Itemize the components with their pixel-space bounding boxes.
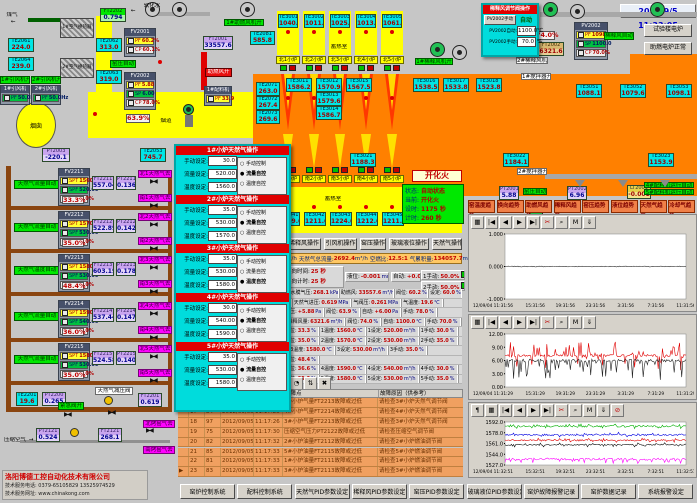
mode-radio-温度自控[interactable]: ○ 温度自控 [240,228,284,238]
param-unit: % [419,346,424,355]
param-value: 35.0 [298,337,310,346]
fan-top-right-icon [650,2,665,17]
instrument-value: 1184.1 [504,160,528,167]
stop-icon[interactable]: ⊘ [611,404,624,417]
controller-title: FV2215 [59,344,89,351]
param-key: 助燃风: [341,289,358,298]
north-flame-core-5 [388,74,396,110]
export-icon[interactable]: ⇓ [583,216,596,229]
id-fan-2-on: 2#引风机开 [31,76,61,84]
nav-button-天然气PID参数设定[interactable]: 天然气PID参数设定 [295,484,350,499]
kiln-pressure-auto: 窑压自动 [110,60,136,68]
instrument-PT2213: PT22130.178 [116,262,136,276]
instrument-value: 0.794 [101,15,125,22]
setpoint-label: 流量设定: [176,219,208,227]
dilution-manual-button[interactable]: PV2002手动 [484,15,516,25]
trend-button-窑温度趋势[interactable]: 窑温度趋势 [468,200,495,213]
param-value: 30.0 [436,365,448,374]
alarm-cell: 请检查3#小炉天然气调节阀 [378,398,463,407]
instrument-value: 1579.6 [317,99,341,106]
op-button-天然气操作[interactable]: 天然气操作 [432,238,462,250]
param-value: 0.261 [371,299,387,308]
gas-valve-1-south-icon: ▶◀ [150,203,164,210]
param-key: 1温度: [321,327,336,336]
burner-panel-title: 3#小炉天然气操作 [176,244,289,253]
trend-button-冷却气趋势[interactable]: 冷却气趋势 [668,200,695,213]
mode-radio-流量自控[interactable]: ● 流量自控 [240,316,284,326]
combustion-fan-2-icon [570,4,585,19]
instrument-value: 0.140 [117,358,135,365]
param-cell: 手动:70.0% [425,318,461,327]
setpoint-input[interactable]: 530.00 [208,267,237,277]
param-unit: % [311,365,316,374]
summary-key: 空燃比: [370,255,388,263]
param-key: 自动: [362,308,374,317]
burner-label-南3小炉[interactable]: 南3小炉 [328,175,352,183]
level-cell-1: 自动:+0.000mm [391,272,421,282]
burner-indicator-on-南3小炉 [332,167,339,173]
hmi-root: 2012/9/5 11:33:05 洛阳博德工控自动化技术有限公司 技术服务电话… [0,0,697,503]
instrument-FT2211: FT2211557.04 [92,176,114,190]
softwater-arrow-icon: ← [128,8,138,16]
mode-radio-温度自控[interactable]: ○ 温度自控 [240,326,284,336]
instrument-TE2073: TE2073269.6 [256,110,280,124]
mode-radio-手动控制[interactable]: ○ 手动控制 [240,355,284,365]
alarm-row-22[interactable]: 22812012/09/0511:17:331#小炉油量FT2111故障或过低请… [178,457,463,467]
mode-radio-手动控制[interactable]: ○ 手动控制 [240,208,284,218]
trend-button-天然气趋势[interactable]: 天然气趋势 [640,200,667,213]
zoom-icon[interactable]: ⌕ [555,216,568,229]
svg-text:3:31:29: 3:31:29 [617,391,634,397]
controller-row-SPF: SPF540.00 [60,318,88,326]
pipe-gas-main [6,166,11,412]
level-key: 自动: [393,274,406,280]
op-button-稀释风操作[interactable]: 稀释风操作 [287,238,321,250]
nav-button-窑炉故障报警记录[interactable]: 窑炉故障报警记录 [524,484,579,499]
param-key: 设定: [430,289,442,298]
marker-icon[interactable]: M [569,216,582,229]
gas-row-3-auto-label: 天然气温度自动 [14,266,60,275]
nav-button-窑炉数据记录[interactable]: 窑炉数据记录 [581,484,636,499]
gas-valve-5-north-icon: ▶◀ [150,354,164,361]
gas-row-4-valve-position: 36.0% [62,328,84,336]
setpoint-label: 手动设定: [176,304,208,312]
next-icon[interactable]: ▶ [513,216,526,229]
instrument-TE2053: TE2053745.7 [140,148,166,162]
mode-radio-手动控制[interactable]: ○ 手动控制 [240,306,284,316]
instrument-FT2214: FT2214537.44 [92,308,114,322]
indicator-dot-12 [286,30,290,34]
alarm-row-20[interactable]: 20822012/09/0511:17:322#小炉油量FT2112故障或过低请… [178,438,463,448]
dilution-label: PV2002自动: [483,28,517,34]
param-key: SPT [69,310,78,316]
status-key: 计时: [405,214,419,223]
controller-row-PF: PF1098.1 [576,31,606,39]
param-key: SPF [69,230,78,236]
mode-radio-温度自控[interactable]: ○ 温度自控 [240,375,284,385]
gas-dest-2-north: 北2天然气去 [138,213,172,221]
first-icon[interactable]: |◀ [485,316,498,329]
trend-button-助燃风趋势[interactable]: 助燃风趋势 [525,200,552,213]
controller-1#配料机[interactable]: 1#配料机PF33.9 [204,86,232,106]
burner-label-北5小炉[interactable]: 北5小炉 [380,56,404,64]
checkbox-icon [578,41,584,47]
grid-icon[interactable]: ▦ [471,216,484,229]
setpoint-input[interactable]: 30.0 [208,303,237,313]
controller-2#引风机[interactable]: 2#引风机PF50.0Hz [31,85,61,105]
op-button-引风机操作[interactable]: 引风机操作 [324,238,357,250]
instrument-value: 224.0 [9,45,33,52]
alarm-cell: 20 [189,438,205,447]
trend-button-液位趋势[interactable]: 液位趋势 [611,200,638,213]
grid-icon[interactable]: ▦ [471,316,484,329]
nav-button-窑炉控制系统[interactable]: 窑炉控制系统 [180,484,235,499]
mode-radio-流量自控[interactable]: ● 流量自控 [240,169,284,179]
burner-label-北1小炉[interactable]: 北1小炉 [276,56,300,64]
setpoint-input[interactable]: 1590.0 [208,329,237,339]
gas-valve-3-north-icon: ▶◀ [150,265,164,272]
param-value: 1100.0 [592,41,612,47]
pipe-gas-row5-pipe [10,381,170,385]
fan-hub [245,7,250,12]
param-cell: 阀位:74.0% [345,318,381,327]
instrument-FT2215: FT2215524.58 [92,351,114,365]
svg-text:1578.0: 1578.0 [486,431,504,437]
alarm-row-23[interactable]: ▶23832012/09/0511:17:333#小炉油量FT2113故障或过低… [178,467,463,477]
mode-radio-流量自控[interactable]: ● 流量自控 [240,218,284,228]
param-unit: % [352,308,357,317]
param-unit: MPa [338,299,348,308]
instrument-value: 268.1 [99,435,121,442]
gas-row-5-auto-label: 天然气流量自动 [14,355,60,364]
burner-label-北3小炉[interactable]: 北3小炉 [328,56,352,64]
instrument-TE2201: TE220119.6 [16,392,38,406]
gas-dest-3-south: 南3天然气去 [138,280,172,288]
grid-icon[interactable]: ▦ [485,404,498,417]
setpoint-label: 手动设定: [176,353,208,361]
setpoint-row-flow: 流量设定:530.00m³/h [176,217,240,228]
fan-hub [548,7,553,12]
instrument-value: 1212.6 [357,219,377,226]
company-website: 技术服务网址: www.chinakong.com [5,490,145,498]
cut-icon[interactable]: ✂ [541,316,554,329]
last-icon[interactable]: ▶| [527,316,540,329]
svg-text:12/09/04 11:31:29: 12/09/04 11:31:29 [473,391,513,397]
alarm-cell: 22 [189,457,205,466]
burner-indicator-on-北2小炉 [306,65,313,71]
param-value: 74.0 [360,318,372,327]
nav-button-窑压PID参数设定[interactable]: 窑压PID参数设定 [409,484,464,499]
coalgas-arrow-icon: ← [8,19,18,27]
gas-pressure-reducer-label: 天然气减压阀 [95,387,133,395]
indicator-dot-13 [312,30,316,34]
trend-button-换向趋势[interactable]: 换向趋势 [497,200,524,213]
indicator-dot-16 [390,30,394,34]
dilution-input[interactable]: 70.0 [517,37,536,47]
setpoint-input[interactable]: 530.00 [208,365,237,375]
south-flame-2 [309,134,319,168]
param-value: 0.619 [321,299,337,308]
prev-icon[interactable]: ◀ [499,316,512,329]
setpoint-row-flow: 流量设定:530.00m³/h [176,266,240,277]
param-unit: m³/h [382,289,394,298]
gas-dest-4-north: 北4天然气去 [138,302,172,310]
burner-label-南4小炉[interactable]: 南4小炉 [354,175,378,183]
param-value: 5.88 [142,82,155,88]
alarm-row-21[interactable]: 21852012/09/0511:17:335#小炉油量FT2115故障或过低请… [178,448,463,458]
param-unit: m³/h [373,346,385,355]
param-key: 阀位: [347,318,359,327]
controller-title: FV2214 [59,301,89,308]
param-cell: 2温度:1570.0℃ [319,337,366,346]
controller-FV2001[interactable]: FV2001PF60.2%CP60.1% [124,28,156,57]
mode-radio-group: ○ 手动控制● 流量自控○ 温度自控 [237,157,287,195]
svg-text:12/09/04 11:31:56: 12/09/04 11:31:56 [473,303,513,309]
param-cell: 2手动:35.0% [419,337,458,346]
controller-1#引风机[interactable]: 1#引风机PF50.0Hz [0,85,30,105]
param-key: 阀位: [326,308,338,317]
burner-panel-body: 手动设定:35.0%流量设定:530.00m³/h温度设定:1580.0℃○ 手… [176,351,289,390]
setpoint-input[interactable]: 520.00 [208,169,237,179]
setpoint-row-manual: 手动设定:35.0% [176,351,240,362]
indicator-dot-1 [158,60,162,64]
param-key: CP [585,50,592,56]
instrument-value: 5.88 [500,193,518,200]
burner-panel-body: 手动设定:30.0%流量设定:540.00m³/h温度设定:1590.0℃○ 手… [176,302,289,341]
param-cell: 1设定:520.00m³/h [366,327,419,336]
svg-text:1561.0: 1561.0 [486,442,504,448]
valve-icon-0: ▶◀ [64,412,78,419]
param-key: PF [585,32,591,38]
setpoint-input[interactable]: 1580.0 [208,378,237,388]
indicator-dot-11 [390,205,394,209]
setpoint-row-manual: 手动设定:35.0% [176,253,240,264]
alarm-row-18[interactable]: 18972012/09/0511:17:263#小炉气量FT2213故障或过低请… [178,418,463,428]
setpoint-input[interactable]: 530.00 [208,218,237,228]
setpoint-input[interactable]: 1560.0 [208,182,237,192]
burner-indicator-off-南4小炉 [367,167,374,173]
next-icon[interactable]: ▶ [513,316,526,329]
pipe-working-end [630,54,697,76]
level-value: -0.001 [361,274,381,280]
svg-text:9.00: 9.00 [492,345,503,351]
svg-text:6.00: 6.00 [492,359,503,365]
nav-button-稀释风PID参数设定[interactable]: 稀释风PID参数设定 [352,484,407,499]
zoom-icon[interactable]: ⌕ [569,404,582,417]
setpoint-input[interactable]: 1580.0 [208,280,237,290]
chart-pressure-trend: ▦|◀◀▶▶|✂⌕M⇓12.009.006.003.000.0012/09/04… [468,314,697,400]
instrument-value: 0.524 [37,435,59,442]
svg-text:11:32:51: 11:32:51 [676,469,694,475]
param-key: PF [215,96,221,102]
param-cell: 1温度:1560.0℃ [319,327,366,336]
param-unit: % [422,289,427,298]
cut-icon[interactable]: ✂ [541,216,554,229]
pin-icon[interactable]: ¶ [471,404,484,417]
dilution-input[interactable]: 1100.0 [517,26,536,36]
dilution-fan-2-on: 2#稀释风机开 [516,57,548,64]
pipe-gas-bottom-main [8,407,170,412]
gas-row-2-auto-label: 天然气流量自动 [14,223,60,232]
instrument-FT2212: FT2212522.89 [92,219,114,233]
flue-motor-base [185,115,193,127]
controller-title: FV2002 [125,73,155,80]
setpoint-input[interactable]: 35.0 [208,352,237,362]
param-value: 78.0 [416,308,428,317]
gas-row-4-auto-label: 天然气流量自动 [14,312,60,321]
pipe-gas-row4-pipe [10,338,170,342]
softwater-label: 软化水 [140,3,164,11]
batch-funnel-icon-2 [660,180,670,187]
setpoint-label: 手动设定: [176,206,208,214]
nav-button-系统报警设定[interactable]: 系统报警设定 [638,484,693,499]
cut-icon[interactable]: ✂ [555,404,568,417]
alarm-cell: 3#小炉油量FT2113故障或过低 [283,467,378,476]
burner-label-北4小炉[interactable]: 北4小炉 [354,56,378,64]
instrument-value: 1586.7 [317,113,341,120]
prev-icon[interactable]: ◀ [499,216,512,229]
last-icon[interactable]: ▶| [541,404,554,417]
alarm-row-19[interactable]: 19752012/09/0511:17:30压缩空气压力PT2122故障或过低请… [178,428,463,438]
op-button-玻璃液位操作[interactable]: 玻璃液位操作 [389,238,429,250]
mode-radio-温度自控[interactable]: ● 温度自控 [240,277,284,287]
south-flame-3 [335,134,345,168]
burner-indicator-on-北5小炉 [384,65,391,71]
nav-button-玻璃液位PID参数设定[interactable]: 玻璃液位PID参数设定 [467,484,522,499]
marker-icon[interactable]: M [583,404,596,417]
aux-furnace-normal-button[interactable]: 助燃电炉正常 [644,42,692,55]
param-key: 3手动: [390,346,405,355]
status-line: 当前:开化火 [405,196,461,205]
param-key: SPF [69,187,78,193]
param-value: 35.0 [436,337,448,346]
param-key: 气阀压: [353,299,370,308]
level-unit: mm [382,274,389,280]
param-key: 气温度: [403,299,420,308]
nav-button-配料控制系统[interactable]: 配料控制系统 [237,484,292,499]
gas-row-2-valve-position: 35.0% [62,239,84,247]
instrument-TE3017: TE30171533.8 [443,78,469,92]
setpoint-input[interactable]: 540.00 [208,316,237,326]
controller-PV2002[interactable]: PV2002PF1098.1SP1100.0CP70.0% [574,22,608,60]
combustion-fan-1-icon [543,2,558,17]
instrument-TE3052: TE30521079.6 [620,84,646,98]
mode-radio-流量自控[interactable]: ○ 流量自控 [240,267,284,277]
mode-radio-手动控制[interactable]: ○ 手动控制 [240,159,284,169]
next-icon[interactable]: ▶ [527,404,540,417]
first-icon[interactable]: |◀ [499,404,512,417]
chart-plot: 12.009.006.003.000.0012/09/04 11:31:2915… [469,330,694,400]
instrument-value: 1011.7 [305,21,323,28]
burner-indicator-off-北4小炉 [367,65,374,71]
status-key: 状态: [405,187,419,196]
zoom-icon[interactable]: ⌕ [555,316,568,329]
status-line: 计时:260 秒 [405,214,461,223]
setpoint-input[interactable]: 30.0 [208,156,237,166]
gas-row-3-valve-position: 48.4% [62,282,84,290]
dilution-air-auto: 稀释风自动 [604,32,634,40]
trend-button-稀释风趋势[interactable]: 稀释风趋势 [554,200,581,213]
first-icon[interactable]: |◀ [485,216,498,229]
param-cell: 4温度:1590.0℃ [319,365,366,374]
param-key: SPF [69,273,78,279]
burner-indicator-on-南4小炉 [358,167,365,173]
batch-funnel-icon-0 [575,180,585,187]
param-unit: ℃ [416,318,422,327]
instrument-value: 33557.6 [204,43,232,50]
alarm-cell: 11:17:30 [254,428,283,437]
burner-label-南2小炉[interactable]: 南2小炉 [302,175,326,183]
mode-radio-温度自控[interactable]: ○ 温度自控 [240,179,284,189]
instrument-value: 1098.1 [667,91,691,98]
setpoint-row-flow: 流量设定:520.00m³/h [176,168,240,179]
instrument-value: 239.0 [9,64,33,71]
alarm-header-cell: 故障点 [284,390,379,397]
instrument-TE3016: TE30161538.5 [413,78,439,92]
burner-indicator-on-北1小炉 [280,65,287,71]
svg-text:7:31:56: 7:31:56 [648,303,665,309]
instrument-TE3043: TE30431224.6 [330,212,352,226]
marker-icon[interactable]: M [569,316,582,329]
trend-button-窑压趋势[interactable]: 窑压趋势 [582,200,609,213]
summary-value: 2692.4 [334,256,355,262]
op-button-窑压操作[interactable]: 窑压操作 [360,238,386,250]
svg-text:19:31:29: 19:31:29 [556,391,576,397]
instrument-value: 6.96 [568,193,586,200]
burner-indicator-off-北5小炉 [393,65,400,71]
controller-row-SP: SP6.00 [126,90,154,98]
mode-radio-手动控制[interactable]: ○ 手动控制 [240,257,284,267]
controller-title: FV2213 [59,255,89,262]
svg-text:3.00: 3.00 [492,372,503,378]
controller-FV2002[interactable]: FV2002PF5.88SP6.00CP78.0% [124,72,156,110]
mode-radio-group: ○ 手动控制● 流量自控○ 温度自控 [237,304,287,342]
instrument-TE2061: TE2061224.0 [8,38,34,52]
summary-value: 12.5:1 [388,256,408,262]
instrument-TE3044: TE30441212.6 [356,212,378,226]
pump-icon-1 [70,428,79,437]
indicator-dot-10 [364,205,368,209]
setpoint-input[interactable]: 1570.0 [208,231,237,241]
instrument-PT2215: PT22150.140 [116,351,136,365]
instrument-value: 1025.1 [331,21,349,28]
last-icon[interactable]: ▶| [527,216,540,229]
export-icon[interactable]: ⇓ [583,316,596,329]
pipe-top-right-pipe [540,12,697,17]
burner-label-北2小炉[interactable]: 北2小炉 [302,56,326,64]
gas-row-1-auto-label: 天然气流量自动 [14,180,60,189]
export-icon[interactable]: ⇓ [597,404,610,417]
controller-row-CP: CP70.0% [576,49,606,57]
instrument-value: 1224.6 [331,219,351,226]
instrument-TE2071: TE2071263.0 [256,82,280,96]
setpoint-input[interactable]: 35.0 [208,205,237,215]
indicator-dot-8 [312,205,316,209]
test-building-furnace-button[interactable]: 试验楼电炉 [644,24,692,37]
status-value: 自动状态 [421,187,445,196]
prev-icon[interactable]: ◀ [513,404,526,417]
param-value: 1560.0 [337,327,356,336]
instrument-PT2001: PT20015.88 [499,186,519,200]
mode-radio-流量自控[interactable]: ● 流量自控 [240,365,284,375]
setpoint-input[interactable]: 35.0 [208,254,237,264]
burner-label-南5小炉[interactable]: 南5小炉 [380,175,404,183]
instrument-FT2121: FT2121268.1 [98,428,122,442]
param-key: 2设定: [368,337,383,346]
alarm-cell [178,448,189,457]
burner-panel-5: 5#小炉天然气操作手动设定:35.0%流量设定:530.00m³/h温度设定:1… [176,342,289,391]
gas-valve-5-south-icon: ▶◀ [150,378,164,385]
